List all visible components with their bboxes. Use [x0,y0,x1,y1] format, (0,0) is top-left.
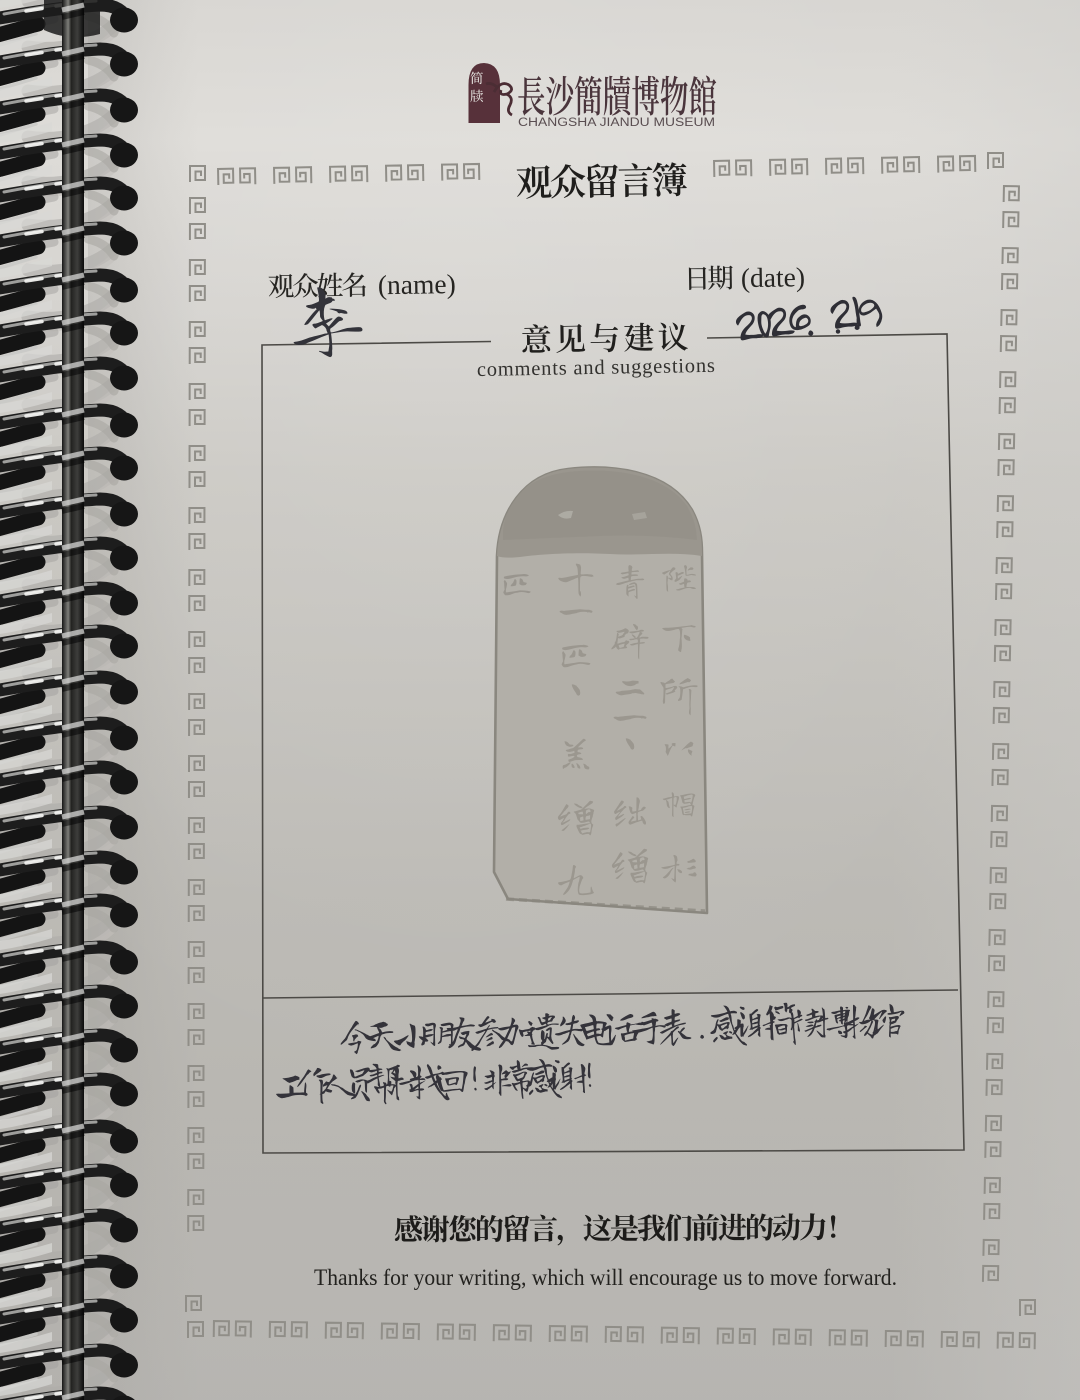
svg-text:comments and suggestions: comments and suggestions [477,355,715,381]
svg-text:CHANGSHA JIANDU MUSEUM: CHANGSHA JIANDU MUSEUM [518,117,715,129]
svg-text:Thanks for your writing, which: Thanks for your writing, which will enco… [314,1265,897,1290]
svg-text:(date): (date) [741,261,806,293]
svg-text:(name): (name) [378,268,456,300]
